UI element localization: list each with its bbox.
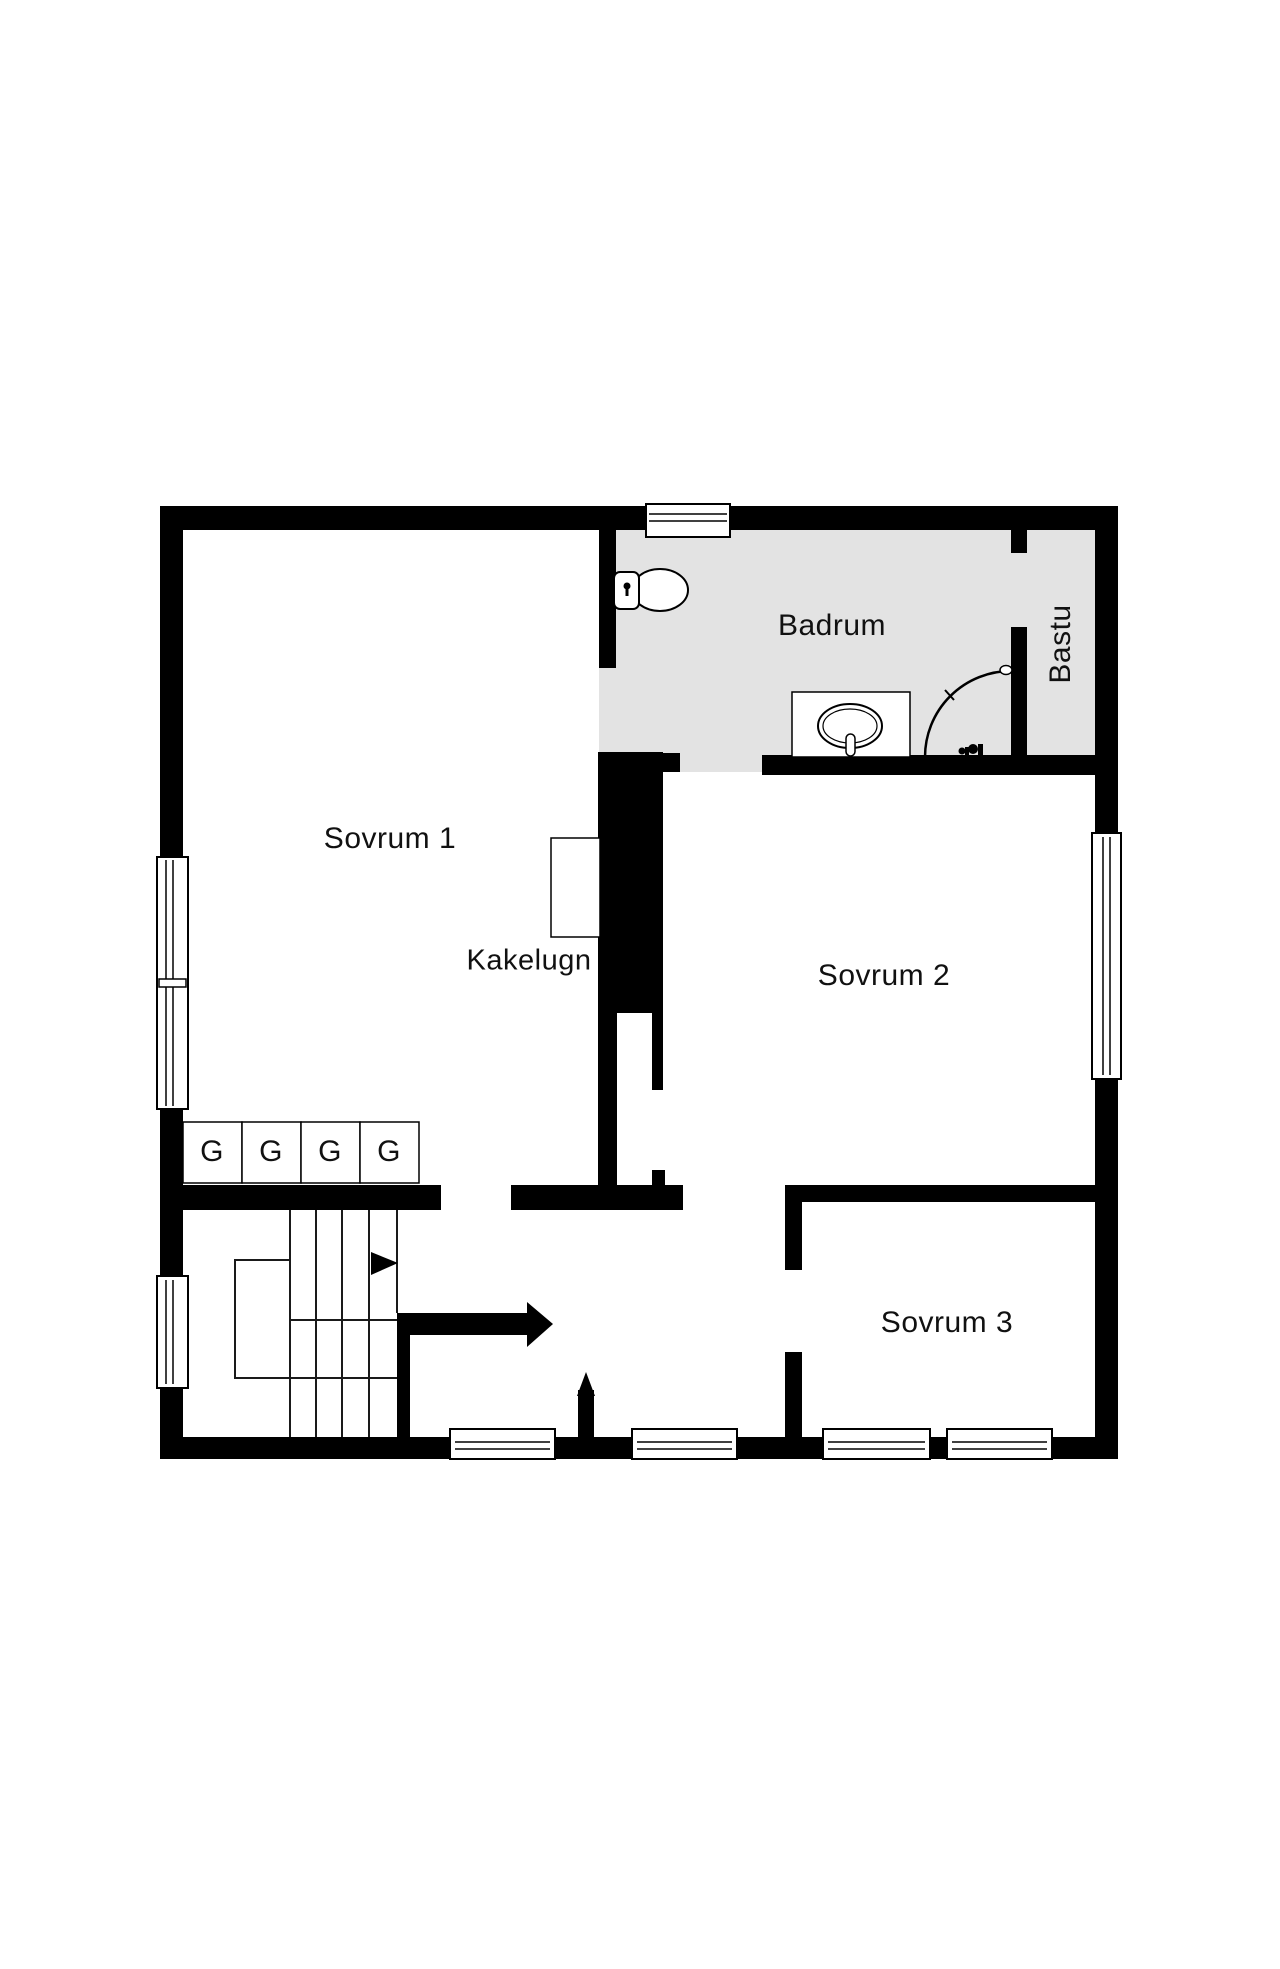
room-label-sovrum3: Sovrum 3: [881, 1306, 1013, 1340]
window-icon: [157, 857, 188, 1109]
staircase-icon: [235, 1210, 397, 1437]
door-direction-arrow-icon: [577, 1372, 595, 1396]
stove-label-kakelugn: Kakelugn: [467, 945, 592, 978]
window-icon: [947, 1429, 1052, 1459]
room-label-badrum: Badrum: [778, 609, 886, 643]
closet-label-g: G: [318, 1135, 342, 1169]
window-icon: [1092, 833, 1121, 1079]
window-icon: [632, 1429, 737, 1459]
window-icon: [450, 1429, 555, 1459]
door-direction-arrow-icon: [527, 1302, 553, 1347]
toilet-icon: [614, 569, 688, 611]
chimney-mass: [598, 752, 663, 1013]
stair-direction-arrow-icon: [371, 1252, 398, 1275]
room-label-bastu: Bastu: [1044, 604, 1078, 683]
window-icon: [646, 504, 730, 537]
room-label-sovrum2: Sovrum 2: [818, 959, 950, 993]
kakelugn-stove-icon: [551, 838, 600, 937]
floor-plan-drawing: [0, 0, 1280, 1969]
window-icon: [823, 1429, 930, 1459]
floor-plan: Sovrum 1 Sovrum 2 Sovrum 3 Badrum Bastu …: [0, 0, 1280, 1969]
closet-label-g: G: [200, 1135, 224, 1169]
room-label-sovrum1: Sovrum 1: [324, 822, 456, 856]
closet-label-g: G: [377, 1135, 401, 1169]
window-icon: [157, 1276, 188, 1388]
closet-label-g: G: [259, 1135, 283, 1169]
sink-icon: [792, 692, 910, 757]
